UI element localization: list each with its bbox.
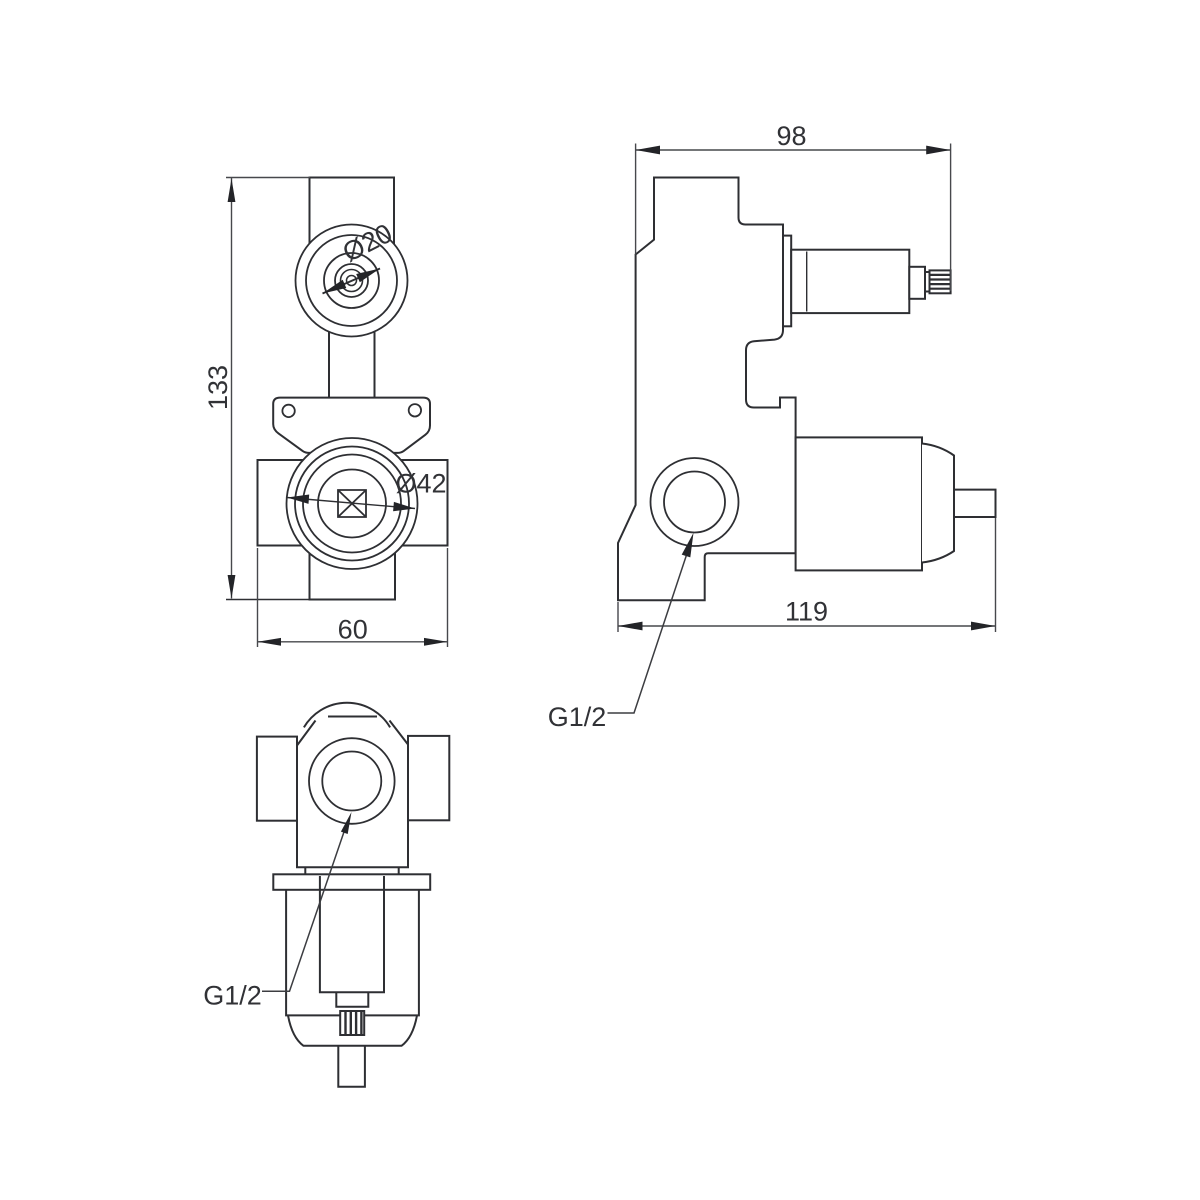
svg-text:98: 98 (776, 121, 806, 151)
svg-text:119: 119 (785, 597, 828, 627)
svg-text:60: 60 (338, 615, 368, 645)
svg-text:133: 133 (203, 365, 233, 410)
svg-text:Ø42: Ø42 (395, 469, 446, 499)
svg-text:G1/2: G1/2 (203, 981, 262, 1011)
svg-text:G1/2: G1/2 (548, 702, 607, 732)
